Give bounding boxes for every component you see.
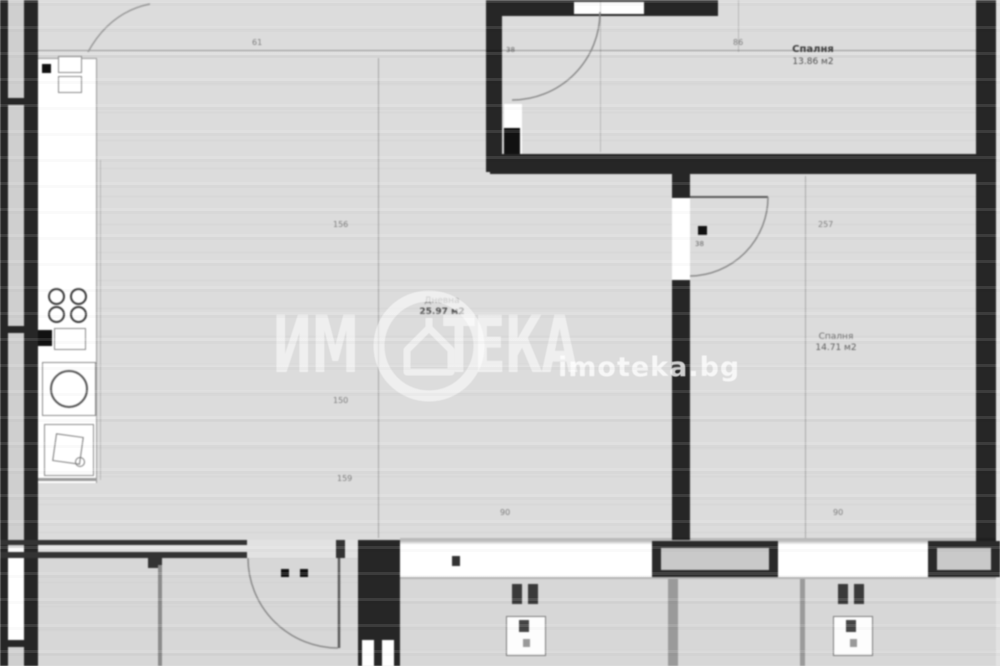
dimension-text: 257	[818, 220, 833, 229]
wall-tick	[8, 326, 24, 333]
dimension-line	[805, 176, 806, 538]
room-label-bedroom-right: Спалня 14.71 м2	[786, 332, 886, 355]
door-hinge-block	[504, 128, 520, 154]
appliance-symbol	[58, 76, 82, 93]
door-opening	[362, 640, 374, 666]
wall-segment	[158, 565, 162, 666]
door-hinge-dot	[300, 569, 308, 577]
room-area: 14.71 м2	[786, 343, 886, 354]
room-name: Спалня	[786, 332, 886, 343]
dimension-text: 90	[833, 508, 843, 517]
wall-segment	[0, 0, 8, 666]
cooktop-burner-icon	[48, 288, 65, 305]
wall-segment	[24, 0, 38, 666]
wall-segment	[800, 579, 805, 666]
column-symbol	[506, 616, 546, 656]
wall-line	[400, 577, 996, 579]
column-symbol	[833, 616, 873, 656]
door-hinge-dot	[698, 226, 707, 235]
cooktop-burner-icon	[48, 306, 65, 323]
wall-segment	[672, 172, 690, 198]
door-hinge-dot	[281, 569, 289, 577]
door-opening	[382, 640, 394, 666]
radiator-symbol	[528, 584, 538, 604]
cooktop-burner-icon	[70, 306, 87, 323]
room-label-bedroom-top: Спалня 13.86 м2	[755, 44, 871, 68]
wall-tick	[8, 640, 24, 647]
appliance-symbol	[54, 328, 86, 350]
window-symbol	[8, 548, 24, 640]
door-tag: 38	[695, 240, 704, 248]
appliance-symbol	[44, 424, 94, 476]
window-symbol	[574, 2, 644, 14]
watermark-website: imoteka.bg	[558, 352, 740, 383]
main-floor-area	[38, 0, 976, 540]
counter-edge-line	[100, 160, 101, 480]
radiator-symbol	[512, 584, 522, 604]
wall-segment	[0, 540, 247, 545]
wall-segment	[668, 579, 678, 666]
fixture-block	[38, 330, 52, 346]
door-jamb	[336, 540, 345, 558]
dimension-text: 156	[333, 220, 348, 229]
lower-right-area-floor	[400, 578, 996, 666]
room-area: 13.86 м2	[755, 57, 871, 68]
door-opening	[672, 198, 690, 280]
watermark: ИМ ТЕКА	[272, 288, 666, 404]
appliance-symbol	[58, 56, 82, 73]
dimension-text: 61	[252, 38, 262, 47]
cooktop-burner-icon	[70, 288, 87, 305]
dimension-extension	[600, 0, 601, 152]
watermark-text-right: ТЕКА	[443, 308, 577, 384]
room-name: Спалня	[755, 44, 871, 57]
wall-segment	[490, 154, 996, 174]
wall-stub	[452, 556, 460, 566]
dimension-text: 90	[500, 508, 510, 517]
lower-left-room-floor	[38, 558, 358, 666]
dimension-text: 159	[337, 474, 352, 483]
wall-segment	[0, 552, 247, 558]
radiator-symbol	[838, 584, 848, 604]
radiator-symbol	[854, 584, 864, 604]
floorplan-image: 38 38	[0, 0, 1000, 666]
window-frame-symbol	[928, 541, 1000, 577]
kitchen-counter	[38, 58, 97, 483]
window-frame-symbol	[652, 541, 778, 577]
wall-segment	[486, 0, 502, 172]
fixture-dot	[42, 64, 51, 73]
wall-segment	[672, 280, 690, 540]
watermark-text-left: ИМ	[272, 308, 358, 384]
wall-segment	[976, 0, 996, 556]
wall-tick	[8, 98, 24, 105]
sink-symbol	[42, 362, 96, 416]
counter-end-line	[38, 478, 96, 481]
dimension-text: 86	[733, 38, 743, 47]
